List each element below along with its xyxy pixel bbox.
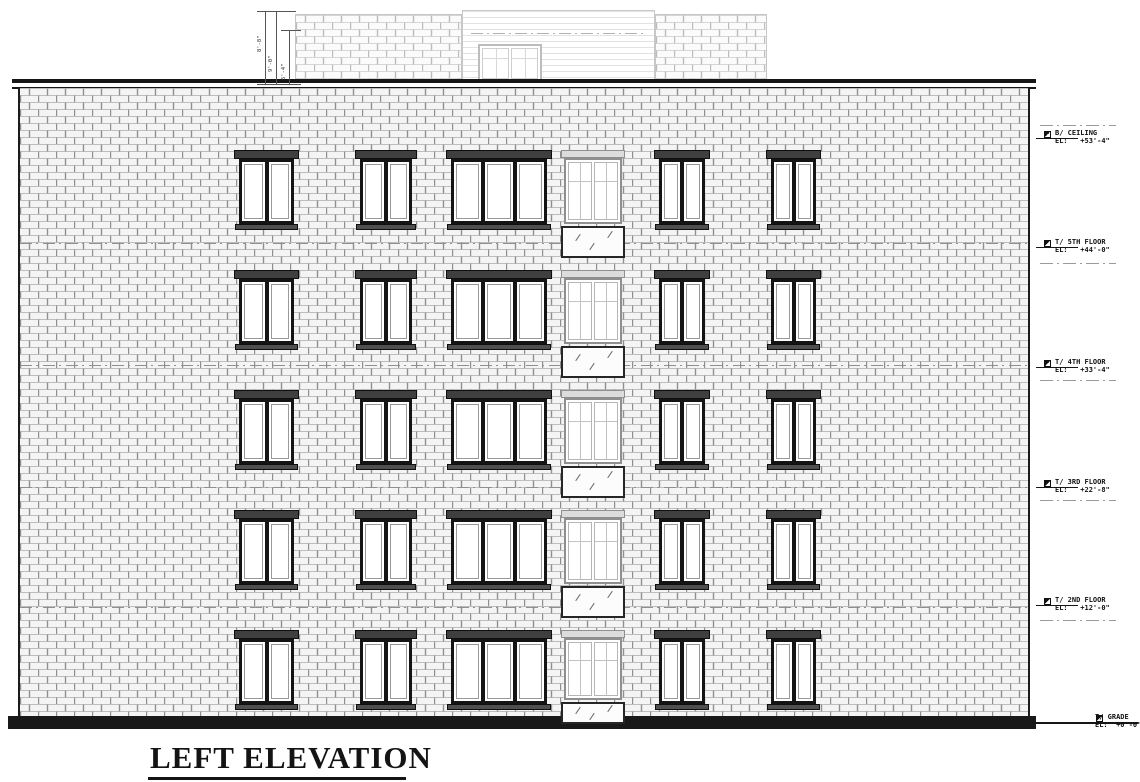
window-sill (235, 224, 298, 230)
window-sash (519, 164, 542, 219)
balcony-door (564, 150, 622, 260)
window (360, 150, 412, 230)
window-sash (456, 644, 479, 699)
marker-reference-dash (1040, 380, 1116, 381)
slab-hatch-tick (607, 591, 612, 598)
window-pane (662, 642, 680, 701)
door-frame (564, 278, 622, 344)
elevation-marker-symbol (1044, 480, 1051, 487)
floor-line (20, 487, 1028, 488)
marker-reference-dash (1040, 620, 1116, 621)
window-frame (659, 519, 705, 584)
window-pane (517, 402, 544, 461)
window-sill (655, 464, 709, 470)
elevation-marker-label: T/ 2ND FLOOREL: +12'-0" (1055, 596, 1139, 612)
marker-reference-dash (1040, 500, 1116, 501)
window-sill (356, 704, 416, 710)
marker-elevation: EL: +0'-0" (1095, 721, 1140, 729)
window-frame (360, 159, 412, 224)
window-lintel (766, 630, 821, 639)
window-sash (664, 524, 678, 579)
window-frame (451, 399, 547, 464)
window-frame (451, 279, 547, 344)
window-pane (485, 282, 512, 341)
window-frame (360, 519, 412, 584)
window-sash (776, 284, 790, 339)
window-sill (655, 584, 709, 590)
window-sill (447, 464, 551, 470)
slab-hatch-tick (575, 474, 580, 481)
window-pane (774, 642, 792, 701)
door-muntin (606, 403, 607, 459)
window-sash (244, 164, 263, 219)
marker-reference-dash (1040, 263, 1116, 264)
door-frame (564, 158, 622, 224)
window-sash (365, 524, 382, 579)
marker-elevation: EL: +22'-8" (1055, 486, 1139, 494)
window-sash (365, 644, 382, 699)
window-pane (388, 402, 409, 461)
elevation-marker-label: T/ GRADEEL: +0'-0" (1095, 713, 1140, 729)
door-leaf (568, 282, 592, 340)
window-lintel (234, 630, 299, 639)
door-leaf (594, 282, 618, 340)
balcony-door (564, 630, 622, 740)
window-frame (771, 159, 816, 224)
marker-name: T/ 2ND FLOOR (1055, 596, 1139, 604)
window-lintel (355, 270, 417, 279)
marker-elevation: EL: +33'-4" (1055, 366, 1139, 374)
window (771, 270, 816, 350)
window (239, 390, 294, 470)
window-sash (686, 644, 700, 699)
window-sash (244, 524, 263, 579)
window-pane (517, 162, 544, 221)
window-sash (271, 164, 290, 219)
slab-hatch-tick (575, 354, 580, 361)
window-pane (454, 402, 481, 461)
window-sill (655, 224, 709, 230)
slab-hatch-tick (607, 351, 612, 358)
window-pane (363, 162, 384, 221)
balcony-door (564, 270, 622, 380)
slab-hatch-tick (607, 471, 612, 478)
window-sash (365, 164, 382, 219)
window-sash (686, 284, 700, 339)
door-head (561, 510, 625, 518)
window-pane (269, 282, 292, 341)
window-lintel (355, 630, 417, 639)
window-pane (454, 162, 481, 221)
window-sill (447, 584, 551, 590)
window-pane (796, 402, 814, 461)
window-pane (684, 282, 702, 341)
window-sash (519, 284, 542, 339)
window-frame (239, 519, 294, 584)
balcony-door (564, 390, 622, 500)
window-sash (686, 404, 700, 459)
window-pane (388, 162, 409, 221)
window-pane (454, 642, 481, 701)
marker-elevation: EL: +53'-4" (1055, 137, 1139, 145)
window-frame (451, 159, 547, 224)
window-pane (684, 642, 702, 701)
window-sill (356, 584, 416, 590)
window-lintel (654, 270, 710, 279)
door-muntin (606, 163, 607, 219)
door-muntin (595, 301, 617, 302)
window-lintel (654, 510, 710, 519)
slab-hatch-tick (589, 363, 594, 370)
door-muntin (580, 283, 581, 339)
window-sash (798, 164, 812, 219)
window-pane (662, 162, 680, 221)
window-sill (655, 344, 709, 350)
floor-line (20, 607, 1028, 608)
window-sash (686, 164, 700, 219)
slab-hatch-tick (607, 231, 612, 238)
window (771, 390, 816, 470)
window-frame (771, 639, 816, 704)
door-muntin (580, 403, 581, 459)
door-muntin (569, 541, 591, 542)
elevation-marker-label: T/ 5TH FLOOREL: +44'-0" (1055, 238, 1139, 254)
window-pane (269, 402, 292, 461)
window-lintel (234, 510, 299, 519)
window-sash (798, 524, 812, 579)
door-muntin (606, 283, 607, 339)
window-sash (390, 404, 407, 459)
door-muntin (606, 643, 607, 695)
window (451, 510, 547, 590)
window-pane (242, 282, 265, 341)
window-pane (363, 282, 384, 341)
slab-hatch-tick (589, 243, 594, 250)
balcony-slab (561, 226, 625, 258)
dimension-line (265, 11, 266, 84)
slab-hatch-tick (589, 712, 594, 719)
dimension-tick (257, 84, 301, 85)
window-sill (767, 464, 820, 470)
window-sash (664, 284, 678, 339)
balcony-slab (561, 346, 625, 378)
window-lintel (446, 150, 552, 159)
door-muntin (569, 181, 591, 182)
window (239, 630, 294, 710)
elevation-marker-label: B/ CEILINGEL: +53'-4" (1055, 129, 1139, 145)
window-pane (242, 402, 265, 461)
window-pane (363, 522, 384, 581)
window-sill (356, 464, 416, 470)
door-muntin (580, 523, 581, 579)
window-lintel (446, 270, 552, 279)
window-frame (239, 159, 294, 224)
window-sill (767, 584, 820, 590)
slab-hatch-tick (575, 707, 580, 714)
window-sash (798, 404, 812, 459)
window (360, 510, 412, 590)
window-pane (242, 642, 265, 701)
window (360, 270, 412, 350)
floor-line (20, 243, 1028, 244)
door-frame (564, 638, 622, 700)
door-head (561, 150, 625, 158)
dimension-label: 9'-0" (268, 55, 274, 72)
door-head (561, 630, 625, 638)
window-sill (767, 344, 820, 350)
dimension-tick (281, 30, 301, 31)
door-muntin (606, 523, 607, 579)
marker-name: T/ GRADE (1095, 713, 1140, 721)
window-pane (662, 402, 680, 461)
window-sash (798, 644, 812, 699)
window-lintel (446, 510, 552, 519)
window-lintel (355, 390, 417, 399)
window-frame (659, 639, 705, 704)
door-leaf (594, 642, 618, 696)
window-pane (684, 522, 702, 581)
floor-line (20, 365, 1028, 366)
window-pane (774, 162, 792, 221)
window-sash (487, 644, 510, 699)
window-sill (235, 704, 298, 710)
window-frame (659, 399, 705, 464)
dimension-line (276, 11, 277, 84)
window-frame (451, 519, 547, 584)
window-sash (456, 164, 479, 219)
window-sash (365, 404, 382, 459)
marker-elevation: EL: +44'-0" (1055, 246, 1139, 254)
window-frame (360, 399, 412, 464)
window-lintel (654, 150, 710, 159)
window-pane (388, 522, 409, 581)
window-lintel (766, 390, 821, 399)
window-sash (519, 644, 542, 699)
elevation-marker-symbol (1044, 131, 1051, 138)
window-sash (487, 284, 510, 339)
window (659, 390, 705, 470)
window (451, 150, 547, 230)
elevation-marker-label: T/ 4TH FLOOREL: +33'-4" (1055, 358, 1139, 374)
window-pane (774, 522, 792, 581)
window-pane (684, 162, 702, 221)
window-sash (456, 524, 479, 579)
window-lintel (654, 630, 710, 639)
window-sash (487, 524, 510, 579)
door-leaf (594, 162, 618, 220)
window (771, 150, 816, 230)
door-muntin (569, 660, 591, 661)
window-pane (388, 282, 409, 341)
window-sash (776, 404, 790, 459)
marker-elevation: EL: +12'-0" (1055, 604, 1139, 612)
window-frame (771, 519, 816, 584)
slab-hatch-tick (575, 594, 580, 601)
marker-reference-dash (1040, 125, 1116, 126)
window-lintel (766, 270, 821, 279)
window-sash (776, 524, 790, 579)
window-lintel (446, 390, 552, 399)
window-pane (242, 162, 265, 221)
window-lintel (446, 630, 552, 639)
window-sash (390, 644, 407, 699)
marker-name: T/ 3RD FLOOR (1055, 478, 1139, 486)
window (771, 630, 816, 710)
marker-name: T/ 5TH FLOOR (1055, 238, 1139, 246)
slab-hatch-tick (575, 234, 580, 241)
window-pane (662, 522, 680, 581)
slab-hatch-tick (589, 483, 594, 490)
window (659, 510, 705, 590)
marker-name: T/ 4TH FLOOR (1055, 358, 1139, 366)
door-muntin (580, 163, 581, 219)
window-frame (451, 639, 547, 704)
window-sash (487, 164, 510, 219)
window-sill (235, 464, 298, 470)
window-pane (796, 162, 814, 221)
window-sash (776, 644, 790, 699)
window (360, 630, 412, 710)
window-pane (485, 522, 512, 581)
window-sill (447, 344, 551, 350)
balcony-slab (561, 586, 625, 618)
window (239, 150, 294, 230)
door-muntin (569, 301, 591, 302)
window-pane (662, 282, 680, 341)
window-sash (519, 524, 542, 579)
window-pane (796, 282, 814, 341)
elevation-marker-label: T/ 3RD FLOOREL: +22'-8" (1055, 478, 1139, 494)
door-frame (564, 398, 622, 464)
window-sill (235, 344, 298, 350)
window-sash (686, 524, 700, 579)
window-sash (798, 284, 812, 339)
balcony-slab (561, 466, 625, 498)
window-frame (659, 279, 705, 344)
window-sash (244, 284, 263, 339)
title-underline (148, 777, 406, 780)
door-muntin (595, 181, 617, 182)
window (659, 630, 705, 710)
door-muntin (569, 421, 591, 422)
window-sash (271, 404, 290, 459)
elevation-marker-symbol (1044, 598, 1051, 605)
window-lintel (234, 390, 299, 399)
window (451, 390, 547, 470)
door-head (561, 270, 625, 278)
window-pane (485, 402, 512, 461)
window (659, 150, 705, 230)
window-sill (767, 224, 820, 230)
window-pane (796, 522, 814, 581)
window-pane (269, 162, 292, 221)
window-sill (447, 224, 551, 230)
window-frame (659, 159, 705, 224)
window-pane (454, 282, 481, 341)
window-sash (456, 404, 479, 459)
dimension-label: 5'-4" (281, 63, 287, 80)
dimension-line (289, 30, 290, 84)
window-sill (356, 344, 416, 350)
window-frame (239, 399, 294, 464)
window (239, 510, 294, 590)
window-pane (517, 642, 544, 701)
window (239, 270, 294, 350)
window-pane (517, 522, 544, 581)
window-frame (360, 639, 412, 704)
elevation-marker-symbol (1044, 240, 1051, 247)
window-lintel (766, 510, 821, 519)
door-head (561, 390, 625, 398)
window-lintel (654, 390, 710, 399)
window-sill (767, 704, 820, 710)
window (360, 390, 412, 470)
window-sash (271, 644, 290, 699)
slab-hatch-tick (607, 705, 612, 712)
window-sill (356, 224, 416, 230)
window-sash (487, 404, 510, 459)
window-frame (771, 399, 816, 464)
window-pane (796, 642, 814, 701)
window-pane (774, 282, 792, 341)
window-pane (684, 402, 702, 461)
window (451, 270, 547, 350)
window-sash (664, 644, 678, 699)
door-frame (564, 518, 622, 584)
window-sash (664, 164, 678, 219)
window (451, 630, 547, 710)
window-lintel (234, 150, 299, 159)
window-pane (517, 282, 544, 341)
marker-name: B/ CEILING (1055, 129, 1139, 137)
window-sash (390, 524, 407, 579)
window-pane (485, 162, 512, 221)
slab-hatch-tick (589, 603, 594, 610)
window-frame (771, 279, 816, 344)
balcony-slab (561, 702, 625, 724)
door-leaf (568, 642, 592, 696)
balcony-door (564, 510, 622, 620)
window-sill (235, 584, 298, 590)
window-frame (360, 279, 412, 344)
window-lintel (355, 150, 417, 159)
window-sash (365, 284, 382, 339)
window-sill (655, 704, 709, 710)
window-pane (363, 402, 384, 461)
window-pane (269, 642, 292, 701)
door-muntin (595, 421, 617, 422)
window-sash (776, 164, 790, 219)
door-leaf (568, 402, 592, 460)
window-sash (271, 284, 290, 339)
door-leaf (568, 522, 592, 580)
window-pane (454, 522, 481, 581)
window-sash (390, 164, 407, 219)
window-pane (485, 642, 512, 701)
window (659, 270, 705, 350)
window-pane (774, 402, 792, 461)
elevation-marker-symbol (1044, 360, 1051, 367)
window-sash (244, 644, 263, 699)
window-sash (456, 284, 479, 339)
door-muntin (580, 643, 581, 695)
window-pane (269, 522, 292, 581)
window-sill (447, 704, 551, 710)
window-pane (363, 642, 384, 701)
window-sash (244, 404, 263, 459)
door-muntin (595, 541, 617, 542)
door-leaf (568, 162, 592, 220)
